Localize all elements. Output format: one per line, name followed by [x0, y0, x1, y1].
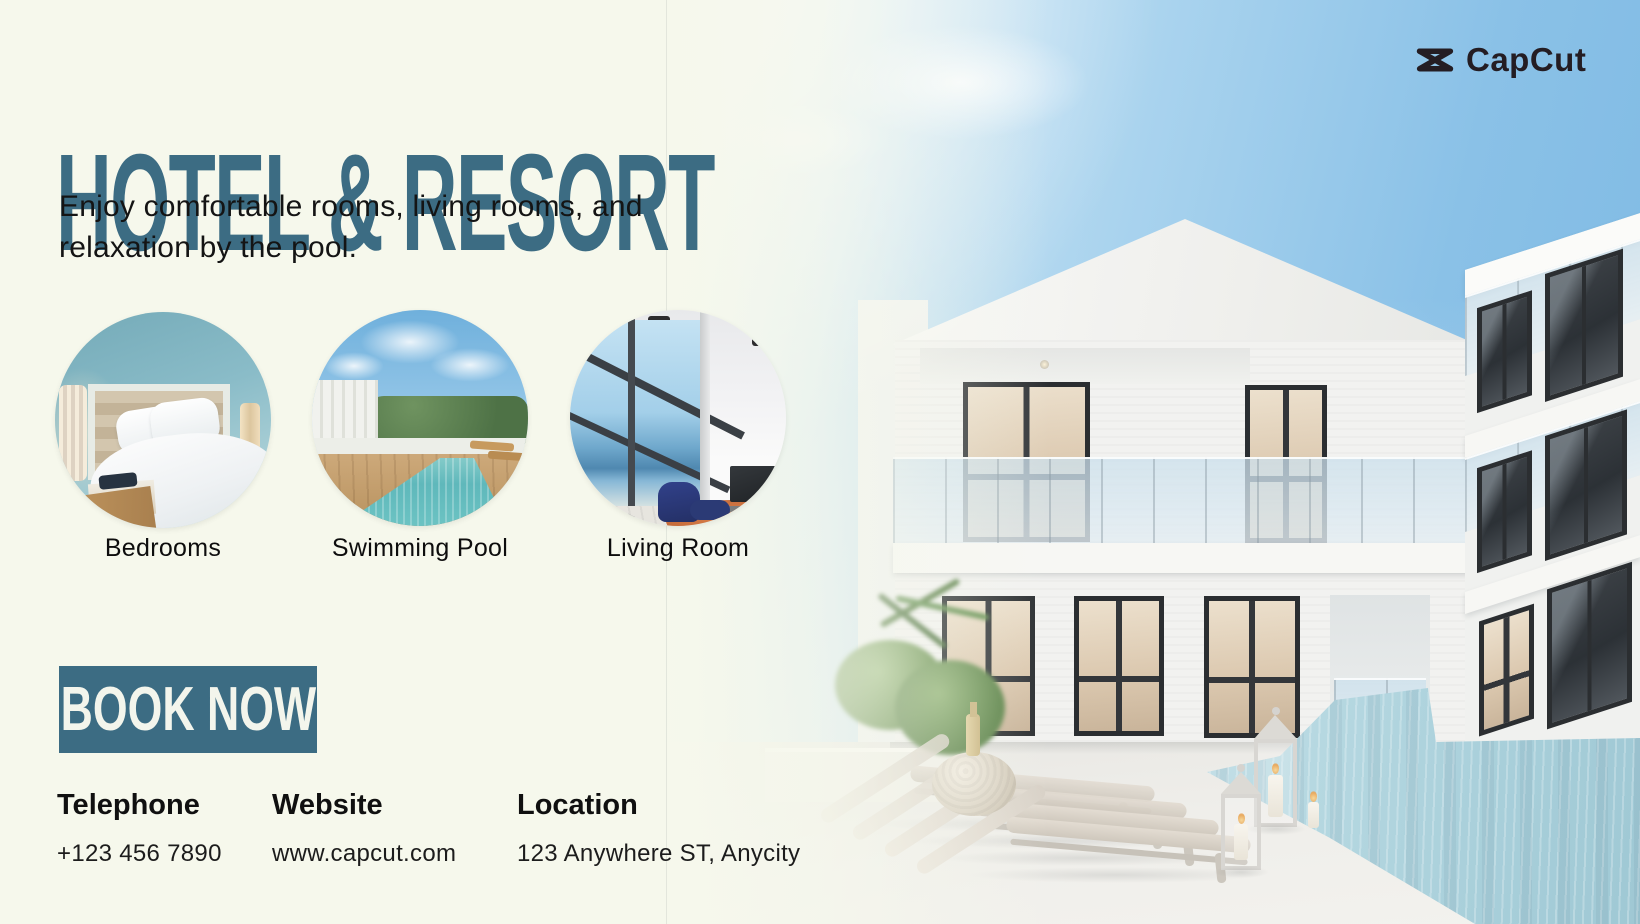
candle-flame	[1272, 763, 1279, 774]
floor-lantern	[1221, 772, 1261, 872]
ceiling-speaker	[752, 336, 770, 346]
ottoman	[690, 500, 730, 520]
subtitle: Enjoy comfortable rooms, living rooms, a…	[59, 186, 643, 268]
book-now-button[interactable]: BOOK NOW	[59, 666, 317, 753]
telephone-heading: Telephone	[57, 789, 200, 822]
tv	[730, 466, 786, 502]
bedrooms-photo	[55, 312, 271, 528]
feature-label-swimming-pool: Swimming Pool	[312, 534, 528, 563]
bedside-lamp	[59, 385, 87, 481]
window-mullion	[628, 310, 635, 526]
coffee-table	[738, 510, 782, 518]
window	[1477, 290, 1532, 413]
location-value: 123 Anywhere ST, Anycity	[517, 840, 800, 868]
candle-flame	[1310, 791, 1317, 802]
lantern-roof	[1221, 772, 1261, 794]
cloud	[430, 348, 510, 382]
window	[1545, 249, 1623, 402]
living-room-photo	[570, 310, 786, 526]
telephone-value: +123 456 7890	[57, 840, 222, 868]
lantern-roof	[1254, 715, 1297, 739]
subtitle-line-1: Enjoy comfortable rooms, living rooms, a…	[59, 186, 643, 227]
subtitle-line-2: relaxation by the pool.	[59, 227, 643, 268]
candle	[1234, 824, 1248, 860]
wall-corner	[700, 310, 710, 526]
website-value: www.capcut.com	[272, 840, 456, 868]
tree-line	[364, 396, 528, 444]
feature-label-bedrooms: Bedrooms	[55, 534, 271, 563]
lantern-knob	[1237, 764, 1245, 772]
lantern-knob	[1272, 707, 1280, 715]
candle	[1268, 775, 1283, 817]
website-heading: Website	[272, 789, 383, 822]
lantern-shadow	[1213, 866, 1269, 878]
feature-label-living-room: Living Room	[570, 534, 786, 563]
book-now-label: BOOK NOW	[60, 674, 315, 745]
capcut-logo: CapCut	[1413, 40, 1586, 80]
window	[1545, 409, 1627, 561]
capcut-logo-text: CapCut	[1466, 41, 1586, 79]
location-heading: Location	[517, 789, 638, 822]
window	[1547, 562, 1632, 730]
capcut-logo-icon	[1413, 40, 1457, 80]
window	[1479, 604, 1534, 737]
candle-flame	[1238, 813, 1245, 824]
cloud	[324, 352, 384, 380]
window	[1477, 450, 1532, 573]
pergola-building	[312, 380, 378, 444]
candle	[1308, 802, 1319, 828]
swimming-pool-photo	[312, 310, 528, 526]
